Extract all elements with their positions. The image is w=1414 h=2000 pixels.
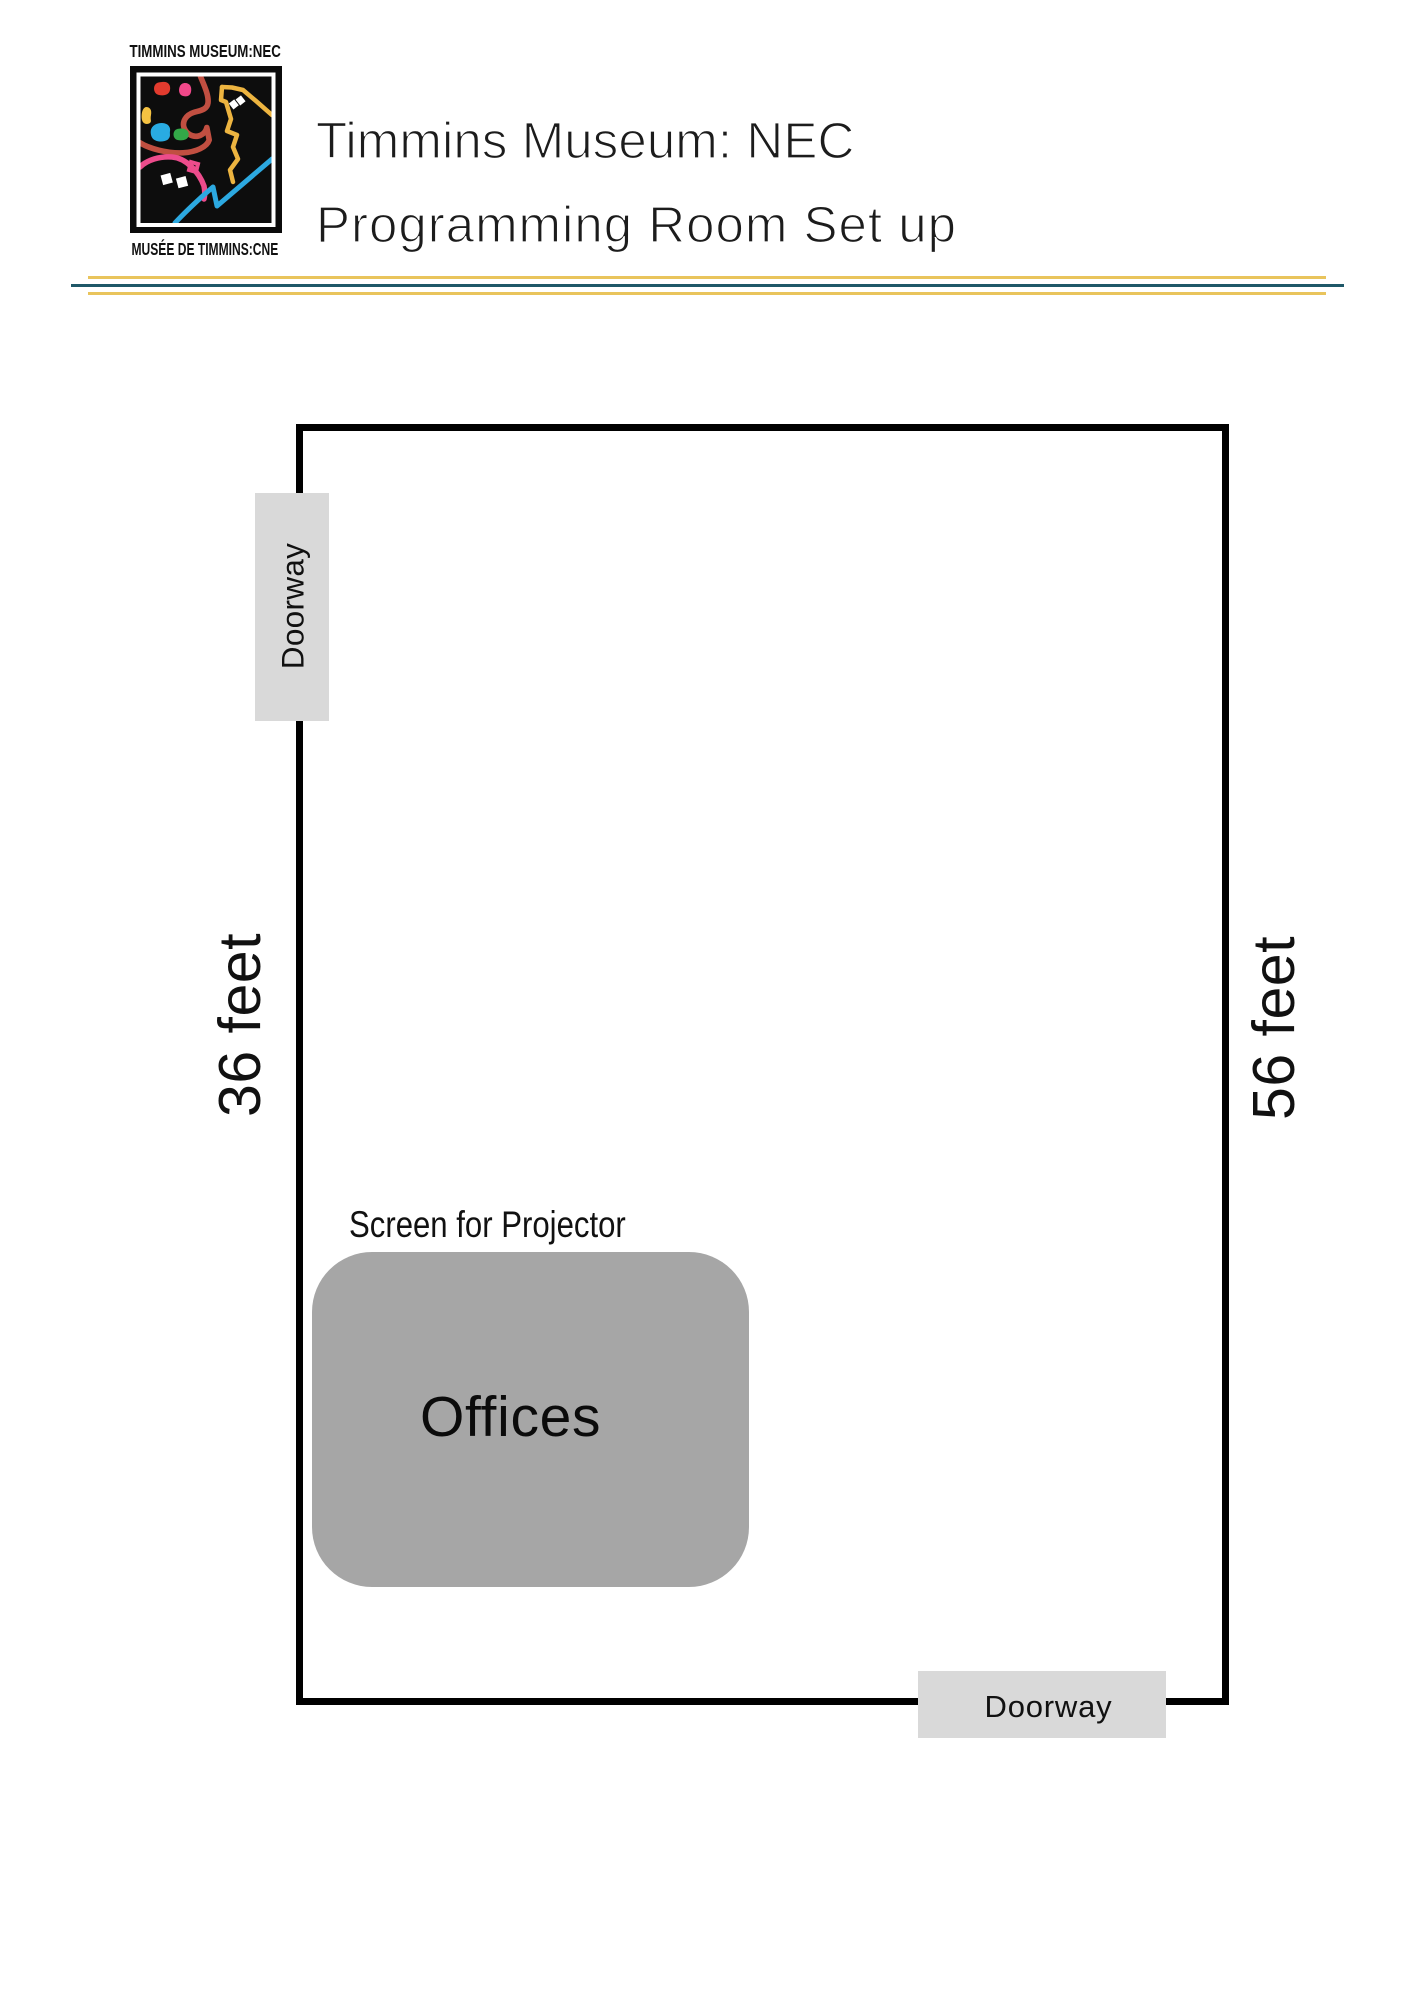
svg-text:TIMMINS MUSEUM:NEC: TIMMINS MUSEUM:NEC <box>130 42 281 61</box>
svg-text:MUSÉE DE TIMMINS:CNE: MUSÉE DE TIMMINS:CNE <box>132 240 279 260</box>
